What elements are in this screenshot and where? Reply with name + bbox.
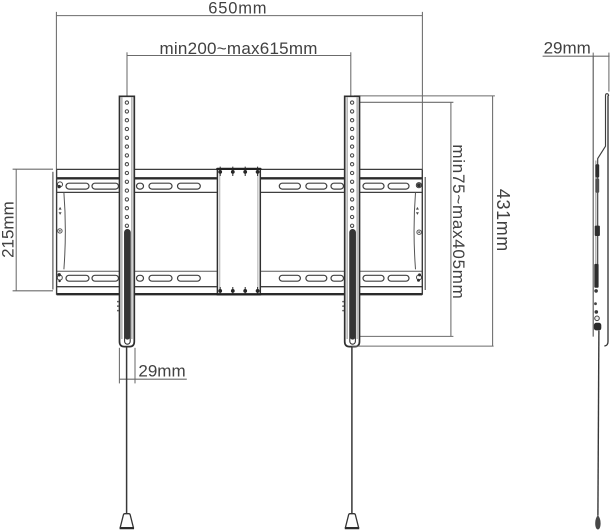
svg-text:min200~max615mm: min200~max615mm bbox=[159, 39, 317, 58]
svg-text:215mm: 215mm bbox=[0, 201, 18, 258]
svg-text:431mm: 431mm bbox=[493, 189, 513, 252]
svg-text:650mm: 650mm bbox=[208, 0, 267, 17]
svg-text:min75~max405mm: min75~max405mm bbox=[449, 144, 468, 299]
svg-text:29mm: 29mm bbox=[138, 362, 185, 381]
svg-text:29mm: 29mm bbox=[544, 39, 591, 58]
